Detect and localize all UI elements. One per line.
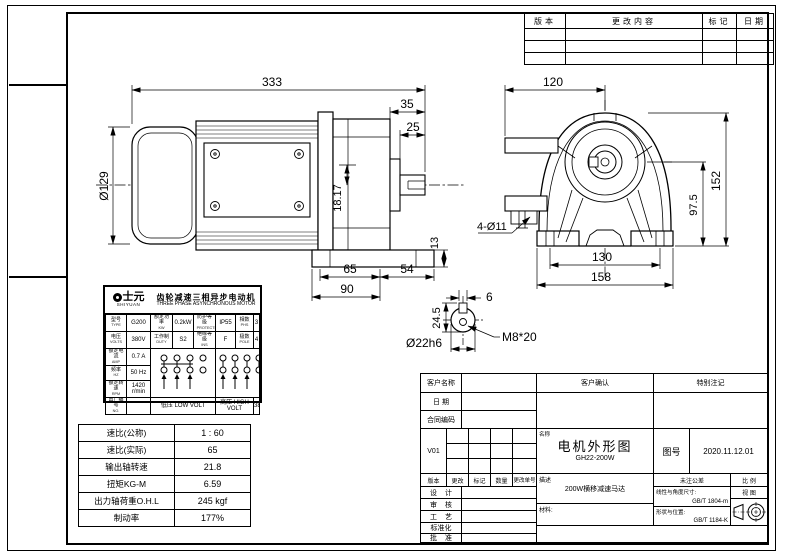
drawing-sheet: { "revision_table": { "headers": ["版本", … [0, 0, 785, 557]
power-label: 额定功率KW [151, 315, 173, 332]
revision-col-content: 更改内容 [566, 14, 703, 29]
nameplate-title: 齿轮减速三相异步电动机 THREE PHASE ASYNCHRONOUS MOT… [152, 293, 260, 308]
spec-label: 速比(实际) [79, 442, 175, 459]
sign-approve-value [461, 533, 537, 543]
spec-row: 扭矩KG-M 6.59 [79, 476, 251, 493]
customer-name-value [461, 373, 537, 393]
dim-face-overhang: 54 [400, 262, 414, 276]
nameplate-table: 型号TYPE G200 额定功率KW 0.2kW 防护等级PROTECTION … [105, 314, 260, 415]
date-value [461, 392, 537, 411]
motor-nameplate: 士元 SHIYUAN 齿轮减速三相异步电动机 THREE PHASE ASYNC… [103, 285, 262, 403]
speed-value: 1420 r/min [127, 381, 151, 398]
dim-input-offset: 18.17 [332, 184, 344, 212]
remarks-area [536, 525, 768, 543]
dim-base-width: 158 [591, 270, 611, 284]
low-voltage-caption: 低压 LOW VOLT [151, 398, 216, 415]
version-grid-cell [446, 443, 469, 459]
spec-row: 速比(实际) 65 [79, 442, 251, 459]
dim-mount-holes: 4-Ø11 [477, 221, 507, 233]
serial-value [127, 398, 151, 415]
spec-label: 速比(公称) [79, 425, 175, 442]
version-grid-cell [468, 428, 491, 444]
speed-label: 额定转速RPM [106, 381, 127, 398]
figure-number-label: 图号 [653, 428, 690, 474]
high-voltage-value: 380V [254, 398, 260, 415]
version-grid-cell [490, 458, 513, 474]
nameplate-header: 士元 SHIYUAN 齿轮减速三相异步电动机 THREE PHASE ASYNC… [105, 287, 260, 314]
dim-foot-span: 65 [343, 262, 357, 276]
geometric-tolerance-cell: 形状与位置: GB/T 1184-K [653, 506, 731, 526]
title-block: 客户名称 日 期 合同编码 V01 版本 更改 标记 数量 更改单号 设 计 审… [420, 373, 768, 543]
dim-overall-length: 333 [262, 75, 282, 89]
description-label: 描述 [539, 475, 551, 484]
current-label: 额定电流AMP [106, 349, 127, 366]
brand-logo: 士元 SHIYUAN [105, 292, 152, 308]
revision-row [525, 41, 774, 53]
tolerance-label: 未注公差 [653, 473, 731, 487]
dim-center-offset: 120 [543, 75, 563, 89]
projection-symbol-cell [730, 498, 768, 526]
drawing-model-code: GH22-200W [576, 455, 615, 464]
current-value: 0.7 A [127, 349, 151, 366]
protection-label: 防护等级PROTECTION [194, 315, 216, 332]
date-label: 日 期 [420, 392, 462, 411]
spec-label: 扭矩KG-M [79, 476, 175, 493]
dim-shaft-length: 25 [406, 120, 420, 134]
rev-header-change: 更改 [446, 473, 469, 487]
dim-tap-hole: M8*20 [502, 330, 537, 344]
geometric-tolerance-label: 形状与位置: [656, 508, 685, 516]
spec-row: 制动率 177% [79, 510, 251, 527]
description-cell: 描述 200W横移减速马达 [536, 473, 654, 504]
pole-label: 极数POLE [236, 332, 254, 349]
version-grid-cell [468, 443, 491, 459]
special-note-label: 特别注记 [653, 373, 768, 393]
shaft-section-detail: 6 24.5 M8*20 Ø22h6 [406, 290, 537, 352]
model-value: G200 [127, 315, 151, 332]
version-grid-cell [490, 443, 513, 459]
voltage-value: 380V [127, 332, 151, 349]
revision-row [525, 53, 774, 65]
scale-label: 比 例 [730, 473, 768, 487]
customer-confirm-area [536, 392, 654, 429]
power-value: 0.2kW [173, 315, 194, 332]
spec-row: 速比(公称) 1 : 60 [79, 425, 251, 442]
rev-header-version: 版本 [420, 473, 447, 487]
motor-side-view: 333 35 25 Ø129 18.17 13 65 54 90 [96, 75, 465, 301]
gear-logo-icon [113, 293, 122, 302]
dim-height: 152 [709, 171, 723, 191]
duty-value: S2 [173, 332, 194, 349]
model-label: 型号TYPE [106, 315, 127, 332]
duty-label: 工作制DUTY [151, 332, 173, 349]
version-grid-cell [446, 428, 469, 444]
insulation-label: 绝缘等级INS [194, 332, 216, 349]
revision-col-version: 版本 [525, 14, 566, 29]
dim-shaft-diameter: Ø22h6 [406, 336, 442, 350]
frequency-value: 50 Hz [127, 366, 151, 381]
version-grid-cell [512, 443, 537, 459]
version-grid-cell [446, 458, 469, 474]
rev-header-order-no: 更改单号 [512, 473, 537, 487]
phase-value: 3 [254, 315, 260, 332]
contract-code-label: 合同编码 [420, 410, 462, 429]
spec-label: 制动率 [79, 510, 175, 527]
spec-table: 速比(公称) 1 : 60 速比(实际) 65 输出轴转速 21.8 扭矩KG-… [78, 424, 251, 527]
figure-number-value: 2020.11.12.01 [689, 428, 768, 474]
dim-base-length: 90 [340, 282, 354, 296]
first-angle-projection-icon [732, 500, 766, 524]
insulation-value: F [216, 332, 236, 349]
description-value: 200W横移减速马达 [565, 484, 625, 494]
spec-label: 出力轴荷重O.H.L [79, 493, 175, 510]
special-note-area [653, 392, 768, 429]
revision-table: 版本 更改内容 标记 日期 [524, 13, 774, 65]
protection-value: IP55 [216, 315, 236, 332]
linear-tolerance-label: 线性与角度尺寸: [656, 488, 696, 496]
version-grid-cell [512, 458, 537, 474]
dim-bolt-spacing: 130 [592, 250, 612, 264]
version-grid-cell [468, 458, 491, 474]
rev-header-mark: 标记 [468, 473, 491, 487]
version-grid-cell [512, 428, 537, 444]
serial-label: 出厂编号NO. [106, 398, 127, 415]
dim-key-width: 6 [486, 290, 493, 304]
voltage-label: 电压VOLTS [106, 332, 127, 349]
material-label: 材料: [536, 503, 654, 526]
gearbox-front-view: 120 152 97.5 4-Ø11 130 158 [477, 75, 729, 289]
customer-confirm-label: 客户确认 [536, 373, 654, 393]
geometric-tolerance-std: GB/T 1184-K [694, 518, 728, 524]
high-voltage-caption: 高压 HIGH VOLT [216, 398, 254, 415]
pole-value: 4 [254, 332, 260, 349]
phase-label: 相数PHS [236, 315, 254, 332]
spec-row: 输出轴转速 21.8 [79, 459, 251, 476]
spec-value: 65 [175, 442, 251, 459]
contract-code-value [461, 410, 537, 429]
linear-tolerance-std: GB/T 1804-m [692, 499, 728, 505]
dim-motor-diameter: Ø129 [97, 171, 111, 201]
dim-foot-thickness: 13 [429, 237, 441, 249]
linear-tolerance-cell: 线性与角度尺寸: GB/T 1804-m [653, 486, 731, 507]
dim-shaft-to-face: 35 [400, 97, 414, 111]
drawing-title: 电机外形图 [557, 439, 632, 455]
spec-row: 出力轴荷重O.H.L 245 kgf [79, 493, 251, 510]
version-grid-cell [490, 428, 513, 444]
customer-name-label: 客户名称 [420, 373, 462, 393]
nameplate-title-en: THREE PHASE ASYNCHRONOUS MOTOR [152, 302, 260, 308]
sign-approve-label: 批 准 [420, 533, 462, 543]
frequency-label: 频率HZ [106, 366, 127, 381]
revision-col-date: 日期 [737, 14, 774, 29]
spec-value: 177% [175, 510, 251, 527]
spec-label: 输出轴转速 [79, 459, 175, 476]
wiring-diagram-low-voltage [151, 349, 216, 398]
rev-header-qty: 数量 [490, 473, 513, 487]
version-value: V01 [420, 428, 447, 474]
name-label: 名称 [539, 430, 550, 438]
spec-value: 21.8 [175, 459, 251, 476]
wiring-diagram-high-voltage [216, 349, 260, 398]
dim-shaft-center-height: 97.5 [688, 194, 700, 215]
spec-value: 245 kgf [175, 493, 251, 510]
spec-value: 6.59 [175, 476, 251, 493]
dim-key-depth: 24.5 [431, 307, 443, 328]
revision-col-mark: 标记 [703, 14, 737, 29]
revision-row [525, 29, 774, 41]
drawing-name-cell: 名称 电机外形图 GH22-200W [536, 428, 654, 474]
brand-name-en: SHIYUAN [117, 303, 141, 308]
spec-value: 1 : 60 [175, 425, 251, 442]
